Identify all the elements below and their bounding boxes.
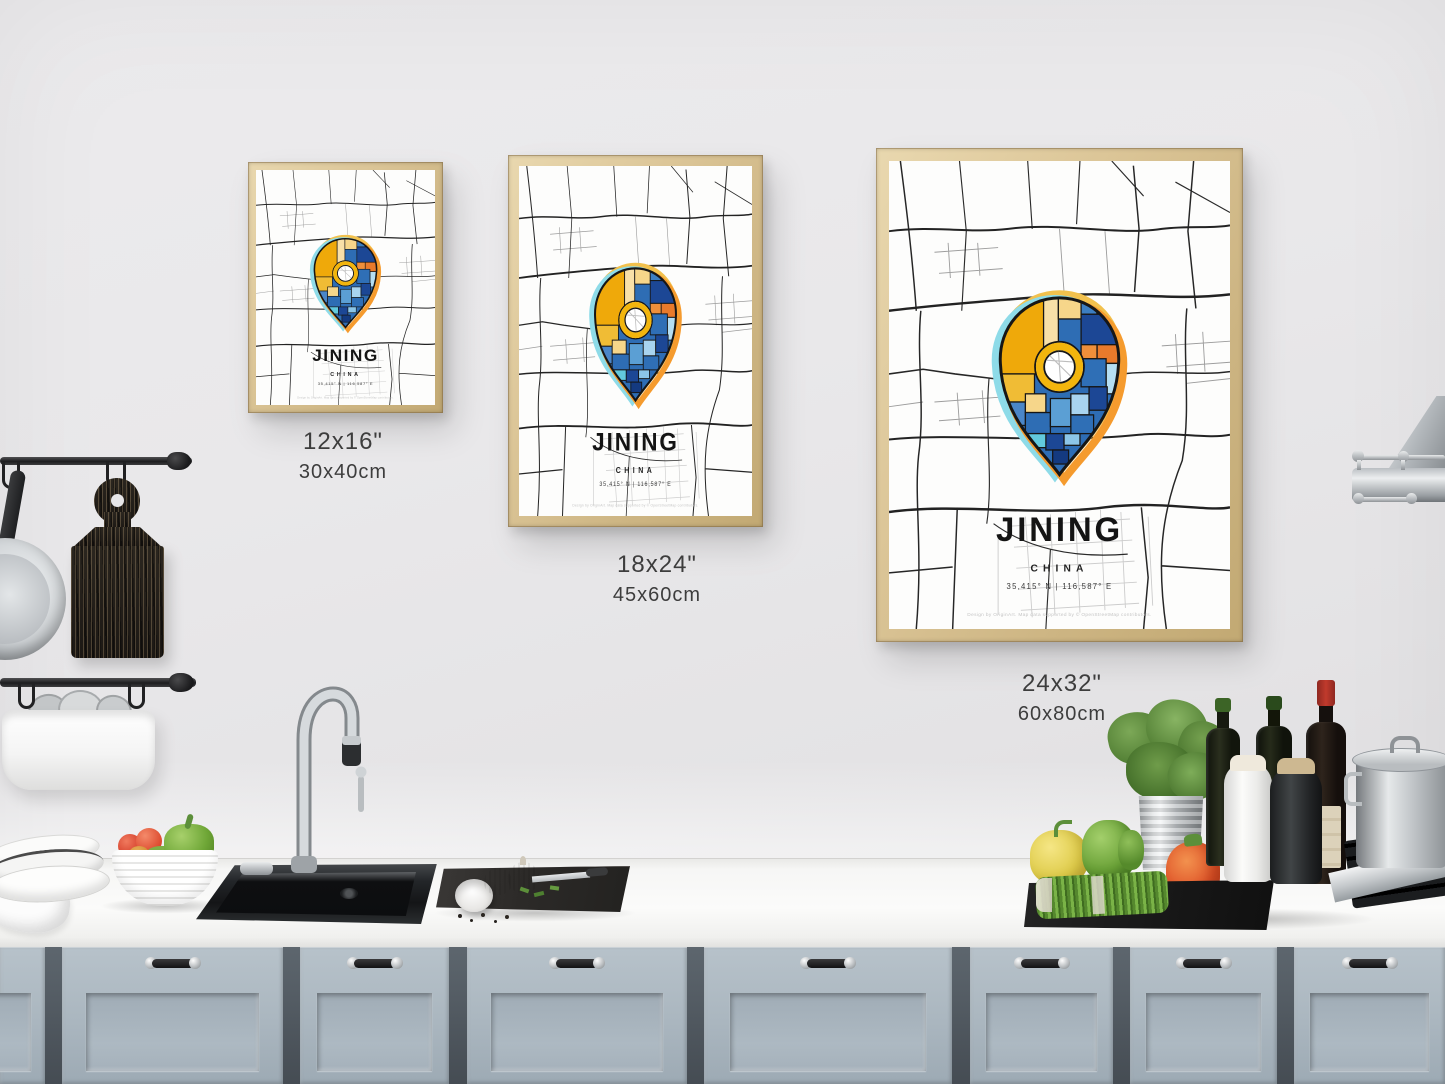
stock-pot — [1356, 758, 1445, 868]
cabinet-handle — [1176, 955, 1232, 972]
cabinet-panel — [986, 993, 1097, 1071]
board-hole — [111, 494, 124, 507]
poster-map-art — [256, 170, 435, 405]
poster-frame-small — [248, 162, 443, 413]
grinder-cap — [1277, 758, 1315, 774]
cabinet-door — [704, 947, 952, 1084]
oil-bottle-cap — [1215, 698, 1231, 712]
size-inches: 24x32" — [972, 670, 1152, 698]
cabinet-panel — [730, 993, 926, 1071]
wall-rail-upper — [0, 457, 192, 465]
green-pepper-small — [1118, 830, 1144, 870]
poster-map-art — [889, 161, 1230, 629]
cabinet-door — [1130, 947, 1277, 1084]
kitchen-scene: JINING CHINA 35,415° N | 116,587° E Desi… — [0, 0, 1445, 1084]
pot-handle — [1344, 772, 1362, 806]
pepper-stem — [1183, 833, 1202, 847]
sink-drain — [340, 888, 358, 899]
size-label-medium: 18x24" 45x60cm — [567, 551, 747, 607]
soap-dispenser — [240, 862, 273, 875]
cabinet-row — [0, 947, 1445, 1084]
hanging-cutting-board-body — [71, 546, 164, 658]
utensil-bucket — [2, 710, 155, 790]
oil-bottle-2-cap — [1266, 696, 1282, 710]
poster-medium — [519, 166, 752, 516]
cabinet-panel — [0, 993, 31, 1071]
cabinet-panel — [317, 993, 432, 1071]
size-inches: 18x24" — [567, 551, 747, 579]
pepper-stem — [1054, 820, 1072, 837]
cabinet-panel — [491, 993, 663, 1071]
pot-lid-handle — [1390, 736, 1420, 753]
poster-large — [889, 161, 1230, 629]
peppercorns — [470, 919, 473, 922]
peppercorns — [505, 915, 509, 919]
rail-end-knob — [169, 673, 194, 692]
cabinet-door — [1294, 947, 1445, 1084]
bucket-hook-right — [128, 684, 145, 709]
cabinet-handle — [347, 955, 403, 972]
cabinet-handle — [549, 955, 605, 972]
bucket-hook-left — [18, 684, 35, 709]
cabinet-door — [0, 947, 45, 1084]
grinder-cap — [1230, 755, 1266, 771]
cabinet-door — [467, 947, 687, 1084]
pepper-grinder-black — [1270, 766, 1322, 884]
cabinet-handle — [145, 955, 201, 972]
faucet — [288, 680, 368, 875]
cabinet-door — [300, 947, 449, 1084]
peppercorns — [481, 913, 485, 917]
onion-tie — [1091, 876, 1105, 915]
onion-root-ends — [1036, 878, 1052, 912]
rail-end-knob — [167, 452, 191, 470]
cabinet-handle — [1342, 955, 1398, 972]
cabinet-panel — [86, 993, 259, 1071]
size-inches: 12x16" — [253, 428, 433, 456]
cabinet-handle — [1014, 955, 1070, 972]
cabinet-door — [62, 947, 283, 1084]
cabinet-panel — [1146, 993, 1261, 1071]
hood-rail-post — [1357, 460, 1361, 470]
hood-rail-ball — [1353, 493, 1364, 504]
cabinet-handle — [800, 955, 856, 972]
size-label-small: 12x16" 30x40cm — [253, 428, 433, 484]
hood-rail-post — [1401, 460, 1405, 470]
poster-frame-medium — [508, 155, 763, 527]
cabinet-panel — [1310, 993, 1429, 1071]
cabinet-door — [970, 947, 1113, 1084]
pepper-grinder-white — [1224, 762, 1272, 882]
hood-rail-ball — [1406, 493, 1417, 504]
sink-basin — [216, 872, 418, 916]
poster-map-art — [519, 166, 752, 516]
poster-small — [256, 170, 435, 405]
garlic-tip — [520, 856, 526, 865]
size-cm: 30x40cm — [253, 461, 433, 484]
poster-frame-large — [876, 148, 1243, 642]
peppercorns — [458, 914, 462, 918]
wine-bottle-cap — [1317, 680, 1335, 706]
peppercorns — [494, 920, 497, 923]
size-cm: 45x60cm — [567, 584, 747, 607]
